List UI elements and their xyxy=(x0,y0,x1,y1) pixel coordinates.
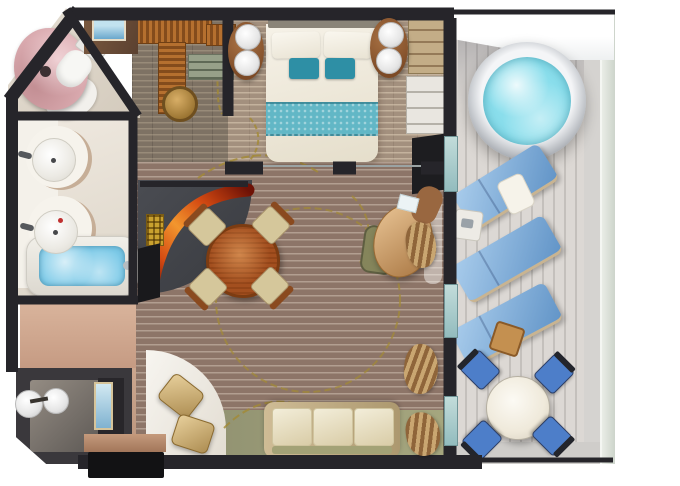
vestibule-globe-lamp xyxy=(43,388,69,414)
closet-stool xyxy=(162,86,198,122)
wardrobe xyxy=(408,18,448,74)
lounger-fold xyxy=(478,250,500,286)
globe-lamp xyxy=(376,48,402,74)
balcony-glass-railing xyxy=(600,14,615,464)
sofa-cushion xyxy=(272,408,312,446)
globe-lamp xyxy=(235,24,261,50)
balcony-glass-door xyxy=(444,136,458,192)
sink-right xyxy=(34,210,78,254)
sofa-cushion xyxy=(354,408,394,446)
three-seat-sofa xyxy=(264,402,400,458)
wall-picture xyxy=(92,15,126,41)
teal-bed-runner xyxy=(266,102,378,136)
table-item xyxy=(461,218,474,229)
sink-drain xyxy=(51,158,56,163)
corridor-wall-art xyxy=(94,382,113,430)
round-hot-tub xyxy=(468,42,586,160)
sofa-seat-edge xyxy=(272,446,392,454)
white-pillow-right xyxy=(324,31,373,59)
globe-lamp xyxy=(234,50,260,76)
gold-floor-lamp xyxy=(146,214,164,246)
teal-pillow-left xyxy=(289,58,319,79)
tv-sideboard xyxy=(138,243,160,302)
teal-pillow-right xyxy=(325,58,355,79)
globe-lamp xyxy=(378,22,404,48)
suite-floor-plan xyxy=(0,0,680,486)
soap-dish xyxy=(58,218,63,223)
closet-counter xyxy=(136,16,212,44)
bed-headboard xyxy=(268,18,380,28)
closet-wall-3d xyxy=(84,10,138,54)
shower-drain xyxy=(40,66,51,77)
media-cabinet xyxy=(406,76,448,134)
bathtub-faucet xyxy=(123,261,132,270)
sink-left xyxy=(32,138,76,182)
vestibule-globe-lamp xyxy=(15,390,43,418)
sink-drain xyxy=(53,230,58,235)
console-table xyxy=(84,434,166,452)
white-pillow-left xyxy=(272,31,321,59)
balcony-side-table xyxy=(452,208,484,242)
nightstand-left xyxy=(228,22,264,80)
balcony-glass-door xyxy=(444,284,458,338)
hot-tub-water xyxy=(483,57,571,145)
nightstand-right xyxy=(370,18,408,78)
entry-door xyxy=(88,452,164,478)
balcony-glass-door xyxy=(444,396,458,446)
closet-drawer-cabinet xyxy=(188,54,234,80)
sofa-cushion xyxy=(313,408,353,446)
